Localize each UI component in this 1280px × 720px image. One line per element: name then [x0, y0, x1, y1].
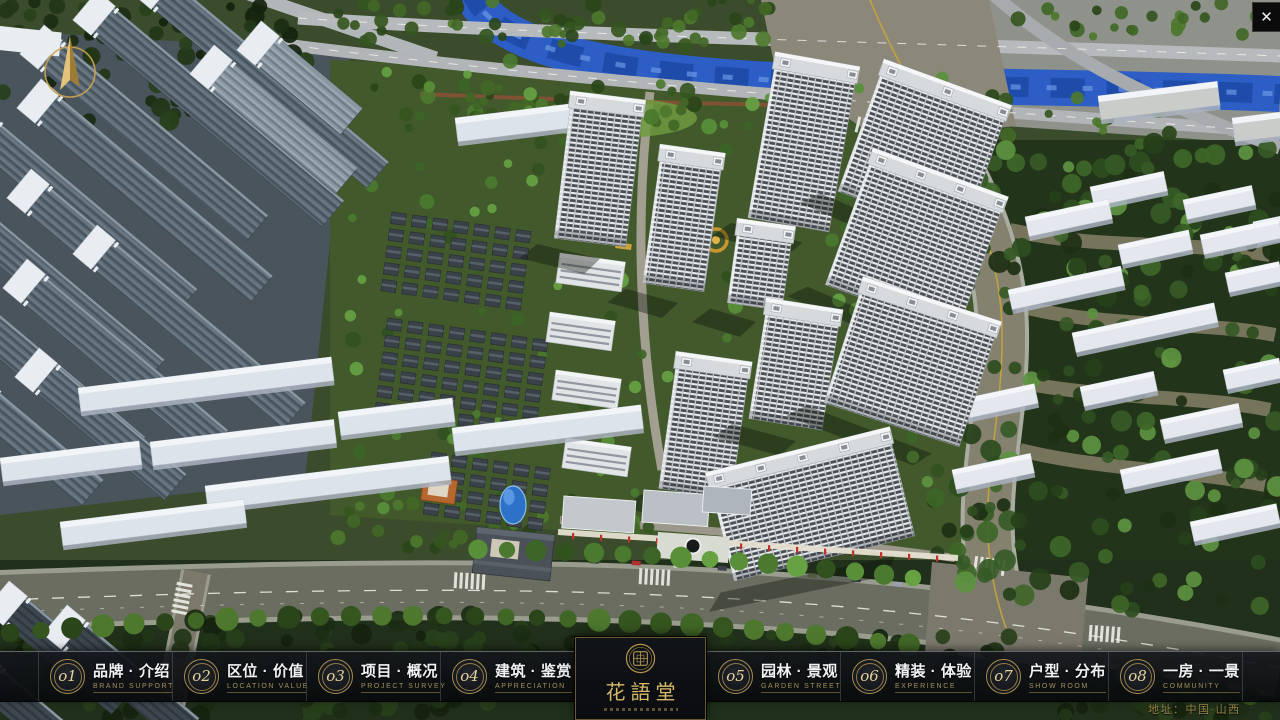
nav-label-zh: 户型 · 分布: [1029, 660, 1106, 681]
close-button[interactable]: ✕: [1252, 2, 1280, 32]
nav-num-badge: o4: [452, 659, 487, 694]
project-address: 地址：中国·山西: [1148, 701, 1241, 717]
nav-label-en: APPRECIATION: [495, 683, 572, 693]
flag: [936, 556, 938, 562]
nav-label-zh: 一房 · 一景: [1163, 660, 1240, 681]
nav-num-badge: o1: [50, 659, 85, 694]
nav-label-zh: 园林 · 景观: [761, 660, 840, 681]
nav-label-en: SHOW ROOM: [1029, 683, 1106, 693]
nav-label-zh: 建筑 · 鉴赏: [495, 660, 572, 681]
car: [718, 566, 727, 571]
masterplan-3d-view[interactable]: [0, 0, 1280, 720]
flag: [880, 552, 882, 558]
nav-num-badge: o8: [1120, 659, 1155, 694]
nav-item-architecture[interactable]: o4 建筑 · 鉴赏 APPRECIATION: [440, 652, 574, 701]
nav-num-badge: o3: [318, 659, 353, 694]
flag: [908, 554, 910, 560]
nav-label-en: EXPERIENCE: [895, 683, 972, 693]
flag: [740, 543, 742, 549]
project-name-caption: [604, 708, 678, 711]
nav-item-location[interactable]: o2 区位 · 价值 LOCATION VALUE: [172, 652, 306, 701]
close-icon: ✕: [1260, 10, 1273, 25]
nav-label-zh: 区位 · 价值: [227, 660, 306, 681]
flag: [824, 549, 826, 555]
project-logo-panel[interactable]: 花語堂: [575, 637, 706, 720]
flag: [600, 535, 602, 541]
nav-item-interior[interactable]: o6 精装 · 体验 EXPERIENCE: [840, 652, 974, 701]
nav-label-en: GARDEN STREET: [761, 683, 840, 693]
nav-item-project[interactable]: o3 项目 · 概况 PROJECT SURVEY: [306, 652, 440, 701]
sales-app-window: ✕ o1 品牌 · 介绍 BRAND SUPPORT o2 区位 · 价值 LO…: [0, 0, 1280, 720]
nav-item-garden[interactable]: o5 园林 · 景观 GARDEN STREET: [706, 652, 840, 701]
nav-item-floorplan[interactable]: o7 户型 · 分布 SHOW ROOM: [974, 652, 1108, 701]
project-name: 花語堂: [601, 676, 681, 705]
nav-label-en: BRAND SUPPORT: [93, 683, 172, 693]
car: [632, 561, 641, 566]
nav-label-en: COMMUNITY: [1163, 683, 1240, 693]
flag: [796, 547, 798, 553]
nav-num-badge: o5: [718, 659, 753, 694]
nav-label-en: PROJECT SURVEY: [361, 683, 440, 693]
flag: [628, 536, 630, 542]
flag: [768, 545, 770, 551]
car: [894, 582, 903, 587]
seal-emblem-icon: [624, 642, 657, 675]
nav-num-badge: o2: [184, 659, 219, 694]
nav-label-zh: 品牌 · 介绍: [93, 660, 172, 681]
nav-divider: [1242, 652, 1243, 701]
nav-num-badge: o7: [986, 659, 1021, 694]
nav-label-zh: 项目 · 概况: [361, 660, 440, 681]
nav-item-brand[interactable]: o1 品牌 · 介绍 BRAND SUPPORT: [38, 652, 172, 701]
compass-icon: [34, 30, 106, 104]
car: [808, 573, 817, 578]
nav-item-community[interactable]: o8 一房 · 一景 COMMUNITY: [1108, 652, 1242, 701]
nav-label-en: LOCATION VALUE: [227, 683, 306, 693]
flag: [572, 533, 574, 539]
flag: [852, 550, 854, 556]
nav-label-zh: 精装 · 体验: [895, 660, 972, 681]
nav-num-badge: o6: [852, 659, 887, 694]
